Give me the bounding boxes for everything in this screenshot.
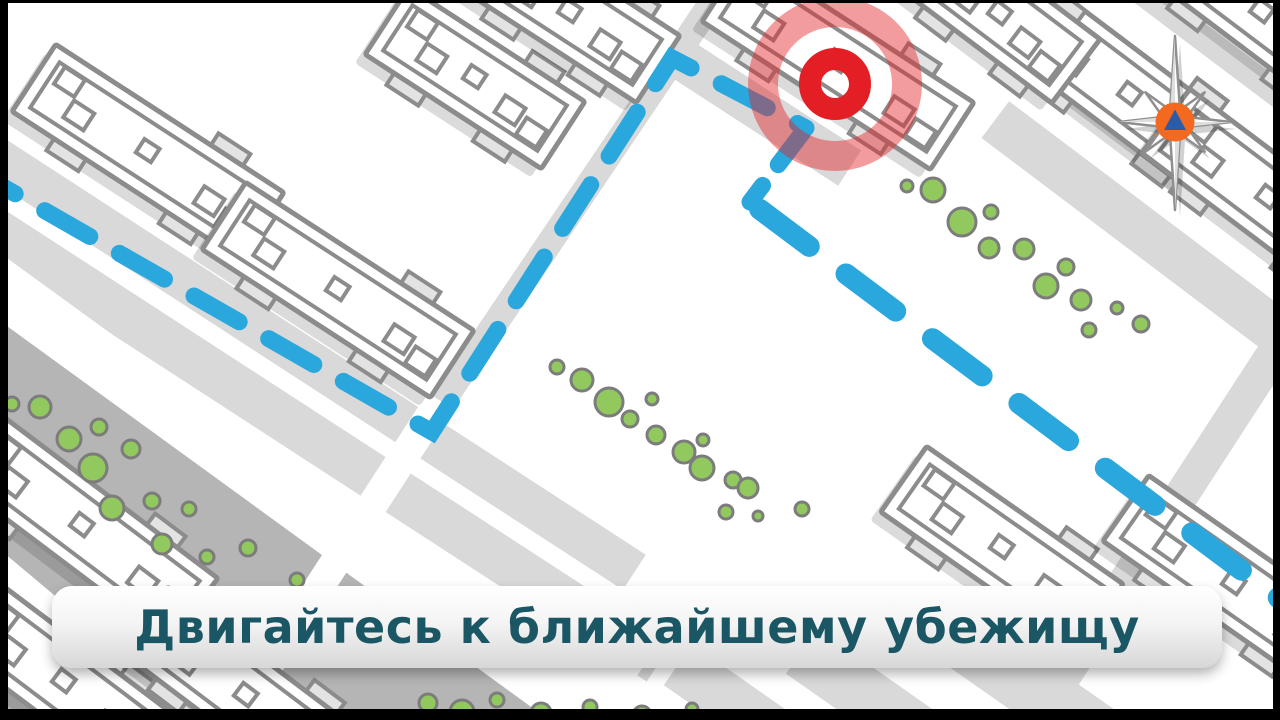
frame-border-top: [0, 0, 1280, 3]
tree-icon: [1014, 239, 1034, 259]
tree-icon: [753, 511, 763, 521]
tree-icon: [719, 505, 733, 519]
tree-icon: [1034, 274, 1058, 298]
tree-icon: [647, 426, 665, 444]
tree-icon: [1111, 302, 1123, 314]
tree-icon: [1058, 259, 1074, 275]
tree-icon: [1071, 290, 1091, 310]
tree-icon: [152, 534, 172, 554]
tree-icon: [182, 502, 196, 516]
tree-icon: [144, 493, 160, 509]
tree-icon: [690, 456, 714, 480]
tree-icon: [29, 396, 51, 418]
tree-icon: [91, 419, 107, 435]
caption-bar: Двигайтесь к ближайшему убежищу: [52, 586, 1222, 668]
caption-text: Двигайтесь к ближайшему убежищу: [134, 600, 1139, 654]
tree-icon: [571, 369, 593, 391]
tree-icon: [100, 496, 124, 520]
frame-border-left: [0, 0, 8, 720]
tree-icon: [984, 205, 998, 219]
tree-icon: [240, 540, 256, 556]
tree-icon: [795, 502, 809, 516]
tree-icon: [290, 573, 304, 587]
tree-icon: [921, 178, 945, 202]
tree-icon: [979, 238, 999, 258]
tree-icon: [697, 434, 709, 446]
tree-icon: [550, 360, 564, 374]
tree-icon: [948, 208, 976, 236]
tree-icon: [490, 693, 504, 707]
tree-icon: [901, 180, 913, 192]
tree-icon: [646, 393, 658, 405]
tree-icon: [738, 478, 758, 498]
tree-icon: [200, 550, 214, 564]
tree-icon: [79, 454, 107, 482]
tree-icon: [595, 388, 623, 416]
tree-icon: [1133, 316, 1149, 332]
tree-icon: [122, 440, 140, 458]
tree-icon: [57, 427, 81, 451]
tree-icon: [622, 411, 638, 427]
video-frame: Двигайтесь к ближайшему убежищу: [0, 0, 1280, 720]
frame-border-bottom: [0, 709, 1280, 720]
tree-icon: [1082, 323, 1096, 337]
frame-border-right: [1273, 0, 1280, 720]
